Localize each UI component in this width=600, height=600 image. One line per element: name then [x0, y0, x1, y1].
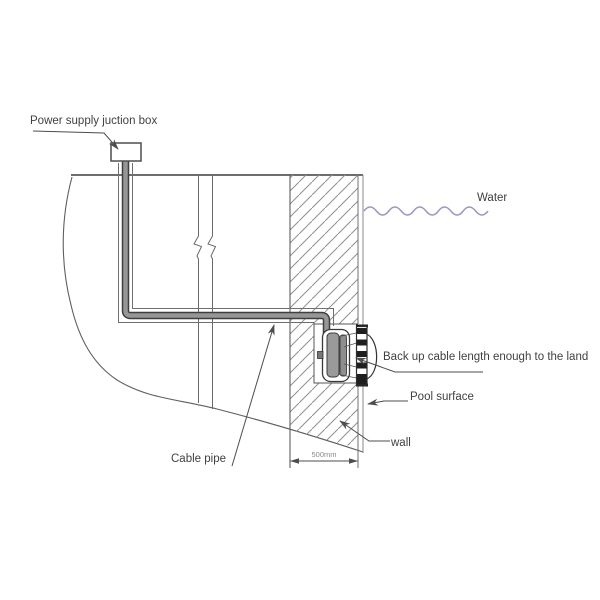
cable-pipe-outline-outer	[119, 163, 315, 323]
wall-hatched-area	[290, 175, 358, 448]
pool-light-fixture	[318, 325, 377, 387]
faceplate-segment	[357, 374, 367, 380]
faceplate-segment	[357, 363, 367, 369]
backup-cable-coil-inner	[340, 335, 347, 376]
wall-dimension: 500mm	[290, 448, 358, 468]
leader-lines	[33, 131, 483, 466]
cable-pipe-label: Cable pipe	[171, 453, 226, 465]
dimension-arrow-left	[290, 458, 299, 463]
dimension-arrow-right	[349, 458, 358, 463]
vertical-pipe-left-line	[194, 175, 202, 403]
pool-surface-label: Pool surface	[410, 391, 474, 403]
pool-surface-leader	[368, 401, 408, 404]
power-box-leader	[33, 131, 118, 149]
cable-pipe-leader	[232, 325, 274, 466]
faceplate-segment	[357, 380, 367, 385]
diagram-svg: 500mm Power supply juction box Water Bac…	[0, 0, 600, 600]
water-line	[364, 207, 488, 215]
vertical-pipe-with-break	[194, 175, 216, 409]
power-box-label: Power supply juction box	[30, 115, 157, 127]
backup-cable-label: Back up cable length enough to the land	[383, 351, 588, 363]
vertical-pipe-right-line	[208, 175, 216, 409]
backup-cable-coil	[327, 333, 339, 377]
faceplate-segment	[357, 340, 367, 346]
wall-label: wall	[390, 437, 411, 449]
lens-dome-arc	[367, 334, 377, 379]
water-label: Water	[477, 192, 507, 204]
faceplate-segment	[357, 351, 367, 357]
faceplate-segment	[357, 328, 367, 334]
pool-light-installation-diagram: 500mm Power supply juction box Water Bac…	[0, 0, 600, 600]
housing-tab	[318, 352, 324, 359]
dimension-text: 500mm	[311, 450, 336, 459]
